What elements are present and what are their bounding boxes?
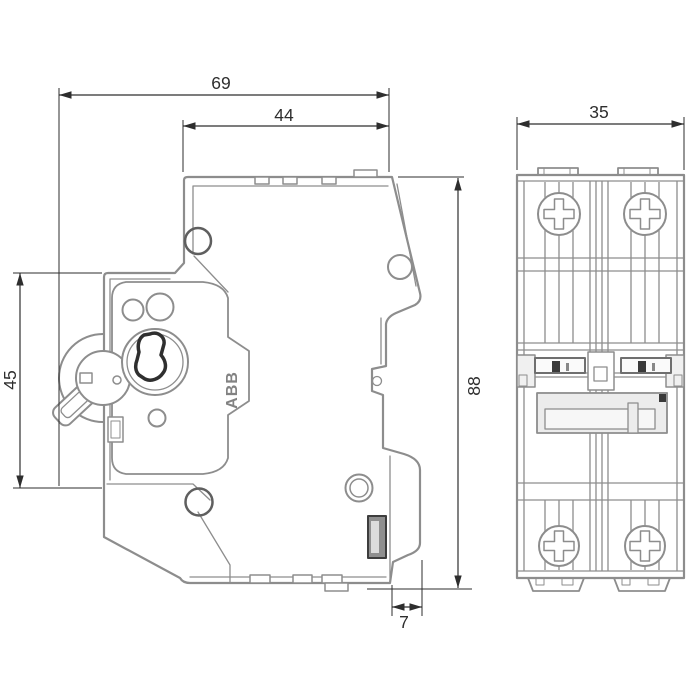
brand-label: ABB: [224, 371, 241, 409]
front-view: [517, 168, 684, 591]
dim-front-height-label: 45: [0, 370, 20, 389]
terminal-screw-top-right: [624, 193, 666, 235]
bottom-feet: [528, 578, 670, 591]
terminal-screw-bottom-left: [539, 526, 579, 566]
handle-coupling: [588, 352, 614, 390]
side-view: ABB: [50, 170, 420, 591]
dim-module-width-label: 35: [589, 102, 608, 122]
rail-catch-hole: [373, 377, 382, 386]
handle-mark-right: [638, 361, 646, 372]
bottom-edge-notches: [250, 575, 348, 591]
mcb-dimensional-drawing: ABB: [0, 0, 700, 700]
dim-total-height-label: 88: [464, 376, 484, 395]
dim-body-depth-label: 44: [274, 105, 294, 125]
terminal-screw-top-left: [538, 193, 580, 235]
lower-recess: [537, 393, 667, 433]
toggle-knob: [136, 333, 166, 380]
terminal-screw-bottom-right: [625, 526, 665, 566]
drawing-canvas: ABB: [0, 0, 700, 700]
handle-mark-left: [552, 361, 560, 372]
dim-total-depth-label: 69: [211, 73, 230, 93]
panel-clip: [108, 417, 123, 442]
din-rail-clip: [368, 516, 386, 558]
dim-rail-clearance-label: 7: [399, 612, 409, 632]
